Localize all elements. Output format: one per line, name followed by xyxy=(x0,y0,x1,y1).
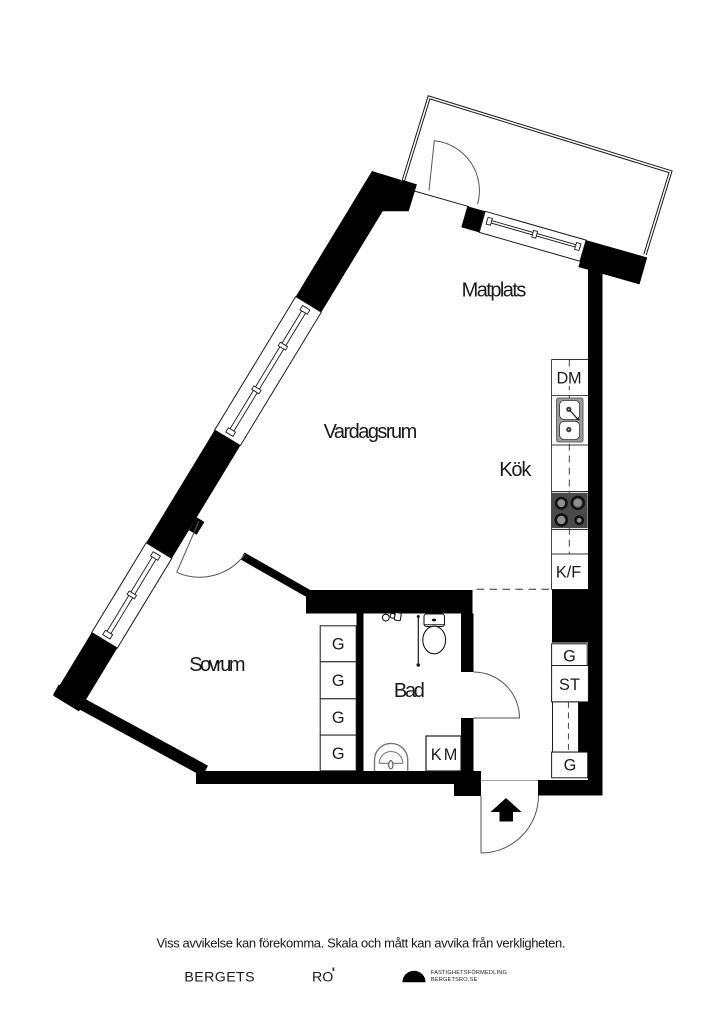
svg-text:Bad: Bad xyxy=(394,680,425,702)
svg-text:Matplats: Matplats xyxy=(462,280,527,302)
svg-text:RO: RO xyxy=(312,969,333,985)
svg-text:G: G xyxy=(563,648,576,666)
svg-text:Viss avvikelse kan förekomma.: Viss avvikelse kan förekomma. Skala och … xyxy=(157,936,566,951)
svg-text:Sovrum: Sovrum xyxy=(189,654,245,676)
svg-text:G: G xyxy=(332,636,345,654)
svg-text:BERGETS: BERGETS xyxy=(184,969,255,985)
svg-text:Vardagsrum: Vardagsrum xyxy=(324,421,418,443)
svg-text:BERGETSRO.SE: BERGETSRO.SE xyxy=(431,977,478,983)
svg-text:G: G xyxy=(564,757,577,775)
svg-text:Kök: Kök xyxy=(499,459,532,481)
svg-text:FASTIGHETSFÖRMEDLING: FASTIGHETSFÖRMEDLING xyxy=(431,969,507,976)
svg-text:G: G xyxy=(332,709,345,727)
svg-text:KM: KM xyxy=(431,746,458,764)
svg-text:ST: ST xyxy=(559,676,580,694)
svg-text:G: G xyxy=(332,672,345,690)
svg-text:K/F: K/F xyxy=(556,563,581,581)
svg-text:G: G xyxy=(332,745,345,763)
svg-text:DM: DM xyxy=(557,370,582,388)
